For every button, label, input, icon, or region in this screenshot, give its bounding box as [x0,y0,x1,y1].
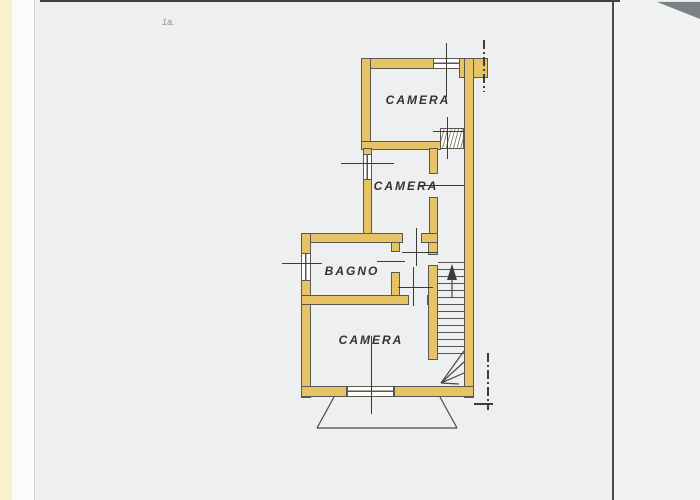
scan-edge-line-left [34,0,35,500]
dimension-line [433,131,464,132]
wall [301,233,403,243]
scanned-floor-plan-page: 1a. [0,0,700,500]
dimension-line [377,261,405,262]
dimension-line [341,163,394,164]
wall [361,58,371,150]
boundary-dashdot-line [483,40,485,92]
scan-margin-right [614,0,700,500]
room-label-camera-2: CAMERA [370,179,442,193]
window [433,58,461,69]
room-label-camera-1: CAMERA [380,93,456,107]
wall-outer-right [464,58,474,398]
window [363,154,372,180]
wall [428,265,438,360]
dimension-line [446,43,447,97]
wall [361,58,434,69]
window [301,253,311,281]
wall [428,242,438,255]
scan-edge-line-right [612,0,614,500]
dimension-line [282,263,322,264]
wall [429,148,438,174]
room-label-bagno: BAGNO [318,264,386,278]
wall [391,242,400,252]
scan-edge-white-stripe [12,0,34,500]
boundary-tick [474,403,493,405]
room-label-camera-3: CAMERA [333,333,409,347]
wall [394,386,474,397]
scan-edge-yellow-stripe [0,0,12,500]
dimension-line [416,228,417,266]
dimension-line [398,287,433,288]
boundary-dashdot-line [487,353,489,410]
wall [301,233,311,254]
dimension-line [402,252,437,253]
plan-linework [0,0,700,500]
wall [301,386,347,397]
wall [301,295,409,305]
stairs [438,256,464,354]
handwritten-note: 1a. [162,17,175,27]
dimension-line [371,336,372,414]
dimension-line [447,117,448,159]
scan-edge-line-top [40,0,620,2]
